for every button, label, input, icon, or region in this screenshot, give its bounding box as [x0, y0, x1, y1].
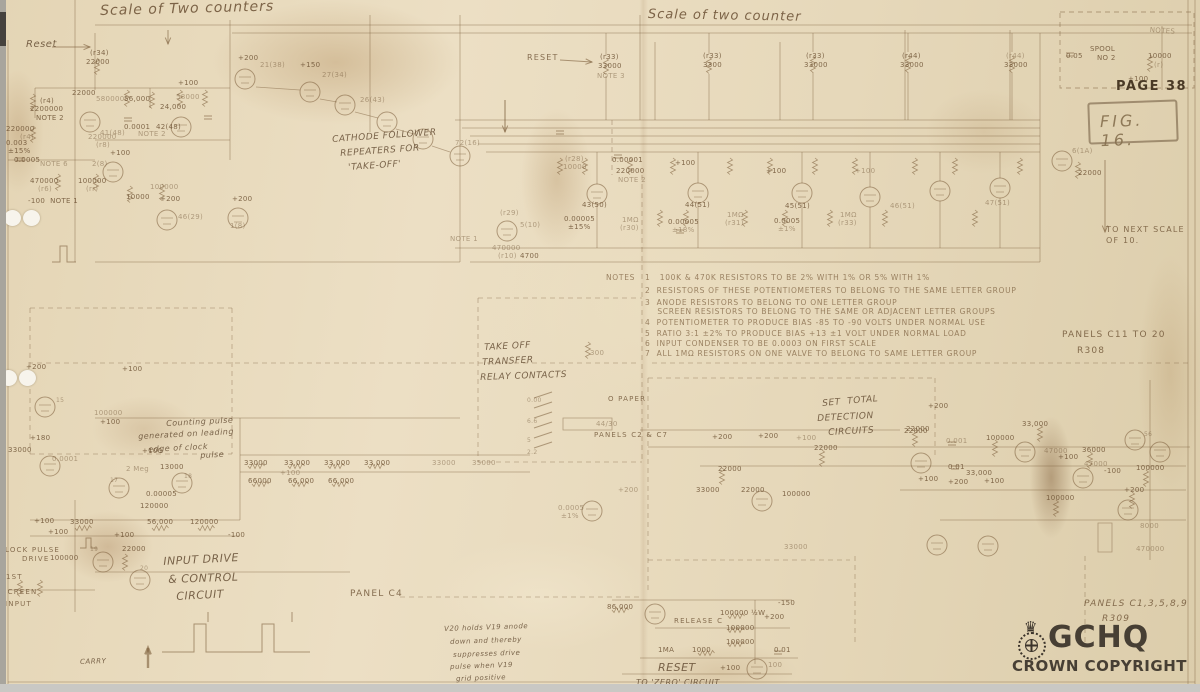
notes-heading: NOTES: [606, 274, 635, 282]
next-scale-label-line1: TO NEXT SCALE: [1106, 226, 1185, 234]
note-line: 1 100K & 470K RESISTORS TO BE 2% WITH 1%…: [645, 274, 930, 282]
note-line: 3 ANODE RESISTORS TO BELONG TO ONE LETTE…: [645, 299, 897, 307]
scan-edge-dark-patch: [0, 12, 6, 46]
note-line: 6 INPUT CONDENSER TO BE 0.0003 ON FIRST …: [645, 340, 877, 348]
panels-r308-label: PANELS C11 TO 20: [1062, 331, 1166, 340]
r308-ref: R308: [1077, 347, 1105, 356]
scanned-schematic-page: Reset(r34)22000+20021(38)+15027(34)26(43…: [0, 0, 1200, 692]
panels-r309-label: PANELS C1,3,5,8,9: [1084, 600, 1188, 609]
punch-hole: [19, 370, 36, 386]
next-scale-label-line2: OF 10.: [1106, 237, 1139, 245]
note-line: 2 RESISTORS OF THESE POTENTIOMETERS TO B…: [645, 287, 1017, 295]
note-line: SCREEN RESISTORS TO BELONG TO THE SAME O…: [645, 308, 996, 316]
note-line: 4 POTENTIOMETER TO PRODUCE BIAS -85 TO -…: [645, 319, 986, 327]
gchq-watermark: ♛ GCHQ CROWN COPYRIGHT: [1008, 618, 1198, 684]
note-line: 5 RATIO 3:1 ±2% TO PRODUCE BIAS +13 ±1 V…: [645, 330, 967, 338]
globe-icon: [1025, 639, 1038, 652]
laurel-wreath-icon: [1018, 632, 1046, 660]
punch-hole: [23, 210, 40, 226]
note-line: 7 ALL 1MΩ RESISTORS ON ONE VALVE TO BELO…: [645, 350, 977, 358]
notes-block: NOTES 1 100K & 470K RESISTORS TO BE 2% W…: [0, 0, 1200, 692]
watermark-subtitle: CROWN COPYRIGHT: [1012, 657, 1187, 675]
scan-edge-left: [0, 0, 6, 692]
scan-edge-bottom: [0, 684, 1200, 692]
punch-hole: [4, 210, 21, 226]
watermark-brand: GCHQ: [1048, 620, 1149, 655]
